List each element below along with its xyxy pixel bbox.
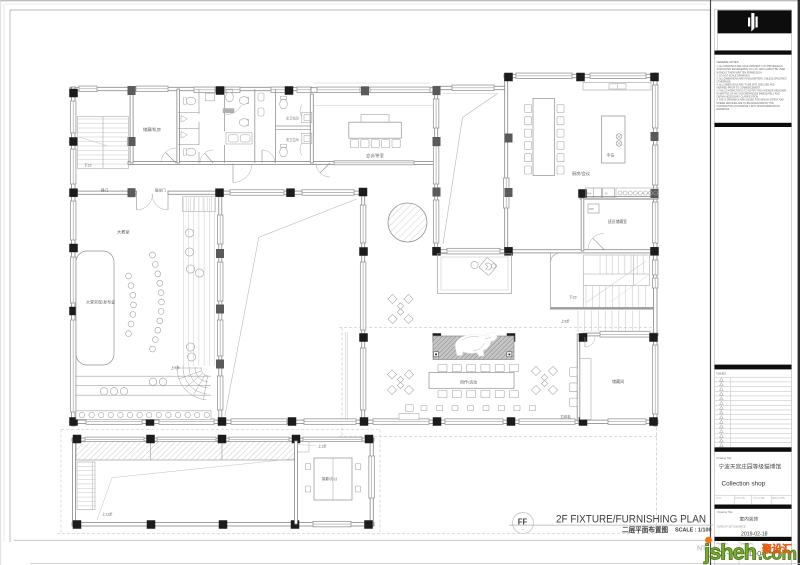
svg-text:厨房/会议: 厨房/会议	[572, 170, 591, 177]
svg-text:中岛: 中岛	[607, 152, 615, 158]
svg-text:Checked By: Checked By	[753, 497, 766, 499]
svg-text:下22: 下22	[84, 164, 92, 168]
svg-text:DATE OF 1ST ISSUANCE: DATE OF 1ST ISSUANCE	[718, 526, 746, 529]
svg-text:班员储藏室: 班员储藏室	[608, 219, 627, 224]
svg-text:会议/茶室: 会议/茶室	[366, 152, 384, 159]
svg-text:2019-02-18: 2019-02-18	[741, 532, 768, 538]
svg-text:Collection shop: Collection shop	[722, 481, 766, 488]
svg-text:ISSUES: ISSUES	[717, 372, 727, 376]
svg-text:摄影/办公: 摄影/办公	[322, 476, 338, 481]
svg-text:Drawing Title: Drawing Title	[718, 510, 734, 514]
svg-text:储藏/机房: 储藏/机房	[143, 126, 161, 133]
svg-text:IN WRITING OF ANY DISCREPANCIE: IN WRITING OF ANY DISCREPANCIES IMMEDIAT…	[717, 93, 780, 96]
svg-text:打印机: 打印机	[561, 414, 572, 419]
svg-text:Drawing Title: Drawing Title	[717, 456, 733, 460]
svg-text:Approved By: Approved By	[772, 496, 785, 499]
svg-text:WHERE DETAILED ARE TO BE DEVEL: WHERE DETAILED ARE TO BE DEVELOPED BY TH…	[717, 102, 775, 105]
svg-text:Drawn By: Drawn By	[735, 496, 745, 499]
svg-text:上9步: 上9步	[171, 365, 181, 370]
svg-text:移门: 移门	[101, 188, 109, 193]
svg-text:储藏间: 储藏间	[612, 378, 624, 384]
svg-text:PNP: PNP	[587, 194, 592, 196]
svg-text:GK: GK	[605, 194, 609, 196]
svg-text:室内装饰: 室内装饰	[740, 516, 759, 523]
svg-text:5. THE CONTRACTOR IS TO NOTIF: 5. THE CONTRACTOR IS TO NOTIFY THE INTER…	[717, 90, 787, 93]
svg-text:SCALE : 1/100: SCALE : 1/100	[675, 528, 712, 534]
svg-text:OTHERWISE.: OTHERWISE.	[717, 81, 732, 83]
svg-text:聚设汇: 聚设汇	[761, 543, 792, 556]
svg-text:ASSOCIATES ENGINEERING CO.,LTD: ASSOCIATES ENGINEERING CO.,LTD. AND CANN…	[717, 68, 786, 71]
svg-text:4. ALL DIMENSIONS ARE TO BE S: 4. ALL DIMENSIONS ARE TO BE SITE CHECKED…	[717, 84, 775, 87]
svg-text:上9步: 上9步	[561, 319, 571, 324]
svg-text:1. ALL DRAWINGS ARE SOLE PROP: 1. ALL DRAWINGS ARE SOLE PROPERTY OF ZHH…	[717, 65, 783, 68]
svg-text:二层平面布置图: 二层平面布置图	[622, 525, 669, 534]
svg-text:6. THE G DRAWINGS ARE ISSUED: 6. THE G DRAWINGS ARE ISSUED FOR DESIGN …	[717, 99, 785, 102]
svg-text:大教室: 大教室	[117, 229, 130, 236]
svg-text:2F FIXTURE/FURNISHING PLAN: 2F FIXTURE/FURNISHING PLAN	[556, 514, 706, 526]
svg-text:VERIFIED PRIOR TO COMMENCEMENT: VERIFIED PRIOR TO COMMENCEMENT.	[717, 88, 761, 90]
svg-text:隐形门: 隐形门	[155, 188, 166, 193]
svg-text:OBTAIN NECESSARY CLARIFICATION: OBTAIN NECESSARY CLARIFICATION.	[717, 96, 760, 99]
svg-text:PRP: PRP	[589, 208, 594, 211]
svg-text:Scale: Scale	[716, 497, 722, 499]
svg-text:大堂实现/发布会: 大堂实现/发布会	[86, 299, 115, 305]
svg-text:jsheh: jsheh	[703, 540, 757, 565]
svg-text:女卫生间: 女卫生间	[286, 116, 299, 121]
svg-text:DRAWINGS.: DRAWINGS.	[717, 108, 731, 111]
svg-text:宁波天宫庄园等级猫博馆: 宁波天宫庄园等级猫博馆	[719, 462, 782, 470]
svg-text:WITHOUT THEIR WRITTEN PERMISSI: WITHOUT THEIR WRITTEN PERMISSION.	[717, 72, 763, 74]
svg-text:2. DO NOT SCALE DRAWINGS.: 2. DO NOT SCALE DRAWINGS.	[717, 74, 751, 77]
svg-text:下22: 下22	[569, 296, 577, 300]
svg-text:3. ALL DIMENSIONS ARE IN MILL: 3. ALL DIMENSIONS ARE IN MILLIMETERS, UN…	[717, 77, 787, 80]
svg-text:上11步: 上11步	[102, 512, 113, 517]
svg-text:GENERAL NOTES:: GENERAL NOTES:	[717, 60, 740, 64]
svg-text:男卫生间: 男卫生间	[286, 137, 299, 142]
svg-text:创作/活动: 创作/活动	[460, 379, 477, 385]
svg-text:CONTRACTOR ACCORDINGLY INTO SH: CONTRACTOR ACCORDINGLY INTO SHOP/FABRICA…	[717, 105, 780, 108]
svg-text:上1步: 上1步	[318, 444, 327, 449]
svg-text:-: -	[522, 528, 524, 534]
